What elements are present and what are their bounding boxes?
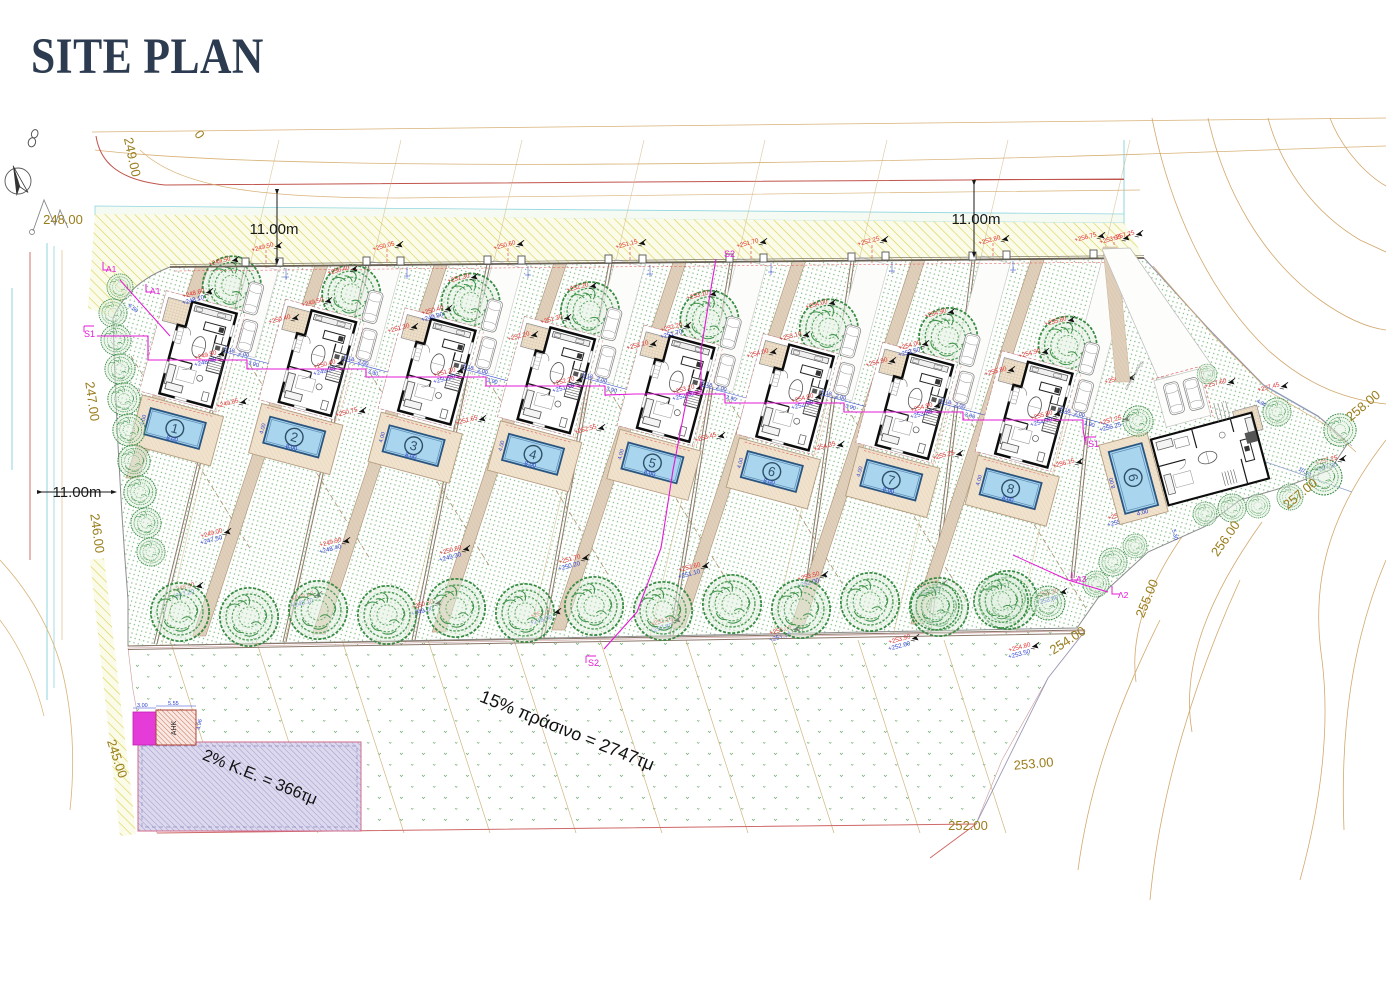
svg-text:S2: S2 (588, 658, 599, 668)
svg-text:S2: S2 (724, 249, 735, 259)
svg-text:11.00m: 11.00m (250, 221, 299, 238)
svg-text:ΑΗΚ: ΑΗΚ (171, 720, 178, 735)
svg-text:Λ1: Λ1 (150, 286, 161, 296)
svg-text:SITE PLAN: SITE PLAN (31, 29, 264, 85)
svg-text:S1: S1 (1088, 439, 1099, 449)
svg-text:S1: S1 (84, 329, 95, 339)
svg-text:252.00: 252.00 (948, 818, 988, 833)
svg-text:Λ2: Λ2 (1118, 590, 1129, 600)
svg-text:248.00: 248.00 (43, 212, 83, 227)
svg-text:11.00m: 11.00m (53, 484, 102, 501)
svg-text:Λ3: Λ3 (1076, 574, 1087, 584)
svg-text:11.00m: 11.00m (952, 211, 1001, 228)
svg-text:Λ1: Λ1 (106, 264, 117, 274)
